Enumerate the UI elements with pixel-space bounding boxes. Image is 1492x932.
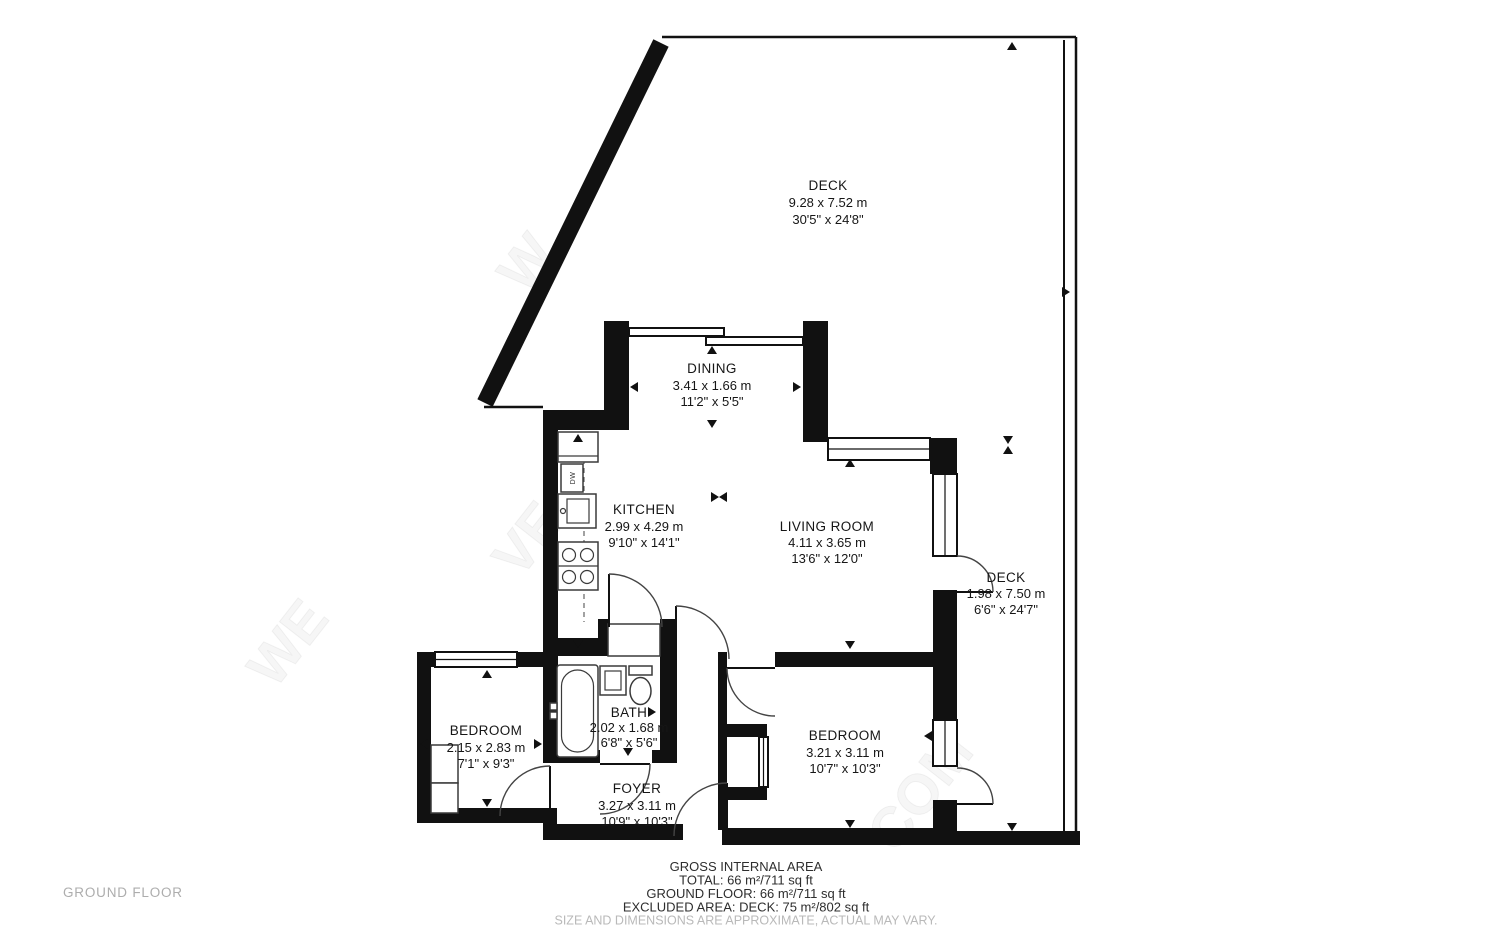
bath-sink (600, 666, 626, 695)
floor-label: GROUND FLOOR (63, 885, 183, 900)
room-dim-metric: 9.28 x 7.52 m (789, 195, 868, 210)
bedroom-right-door (727, 668, 775, 716)
kitchen-closet-door (609, 574, 662, 627)
room-name: DECK (808, 178, 847, 193)
room-dim-metric: 1.98 x 7.50 m (967, 586, 1046, 601)
room-name: DECK (986, 570, 1025, 585)
room-dim-metric: 2.15 x 2.83 m (447, 740, 526, 755)
toilet-tank (629, 666, 652, 675)
room-label-dining: DINING 3.41 x 1.66 m 11'2" x 5'5" (673, 361, 752, 409)
living-room-door (676, 606, 729, 659)
toilet-bowl (630, 678, 651, 705)
kitchen-fixtures: DW (558, 432, 598, 622)
dishwasher-label: DW (570, 472, 577, 485)
room-dim-imperial: 10'9" x 10'3" (601, 814, 673, 829)
room-label-living-room: LIVING ROOM 4.11 x 3.65 m 13'6" x 12'0" (780, 519, 874, 566)
room-label-bedroom-left: BEDROOM 2.15 x 2.83 m 7'1" x 9'3" (447, 723, 526, 771)
room-dim-metric: 2.99 x 4.29 m (605, 519, 684, 534)
room-name: LIVING ROOM (780, 519, 874, 534)
room-dim-metric: 4.11 x 3.65 m (788, 535, 866, 550)
sliding-panel (706, 337, 803, 345)
bedroom-left-furniture (431, 745, 458, 813)
room-name: BEDROOM (809, 728, 882, 743)
room-dim-imperial: 9'10" x 14'1" (608, 535, 680, 550)
watermark-fragment: WE (235, 588, 340, 698)
room-dim-imperial: 6'6" x 24'7" (974, 602, 1038, 617)
sliding-door-dining (629, 328, 803, 345)
room-dim-imperial: 13'6" x 12'0" (791, 551, 863, 566)
room-name: BEDROOM (450, 723, 523, 738)
room-label-foyer: FOYER 3.27 x 3.11 m 10'9" x 10'3" (598, 781, 676, 829)
room-label-bath: BATH 2.02 x 1.68 m 6'8" x 5'6" (590, 705, 669, 750)
room-name: BATH (611, 705, 648, 720)
room-name: FOYER (613, 781, 662, 796)
windows (435, 438, 957, 766)
room-dim-imperial: 30'5" x 24'8" (792, 212, 864, 227)
room-dim-metric: 2.02 x 1.68 m (590, 720, 669, 735)
diagonal-deck-wall (485, 43, 661, 403)
room-dim-metric: 3.27 x 3.11 m (598, 798, 676, 813)
room-label-deck-side: DECK 1.98 x 7.50 m 6'6" x 24'7" (967, 570, 1046, 617)
room-dim-metric: 3.41 x 1.66 m (673, 378, 752, 393)
dimension-ticks (420, 42, 1070, 831)
room-label-kitchen: KITCHEN 2.99 x 4.29 m 9'10" x 14'1" (605, 502, 684, 550)
sliding-panel (629, 328, 724, 336)
kitchen-closet (608, 624, 660, 656)
area-summary: GROSS INTERNAL AREA TOTAL: 66 m²/711 sq … (555, 859, 938, 928)
summary-excluded: EXCLUDED AREA: DECK: 75 m²/802 sq ft (623, 900, 870, 915)
room-label-bedroom-right: BEDROOM 3.21 x 3.11 m 10'7" x 10'3" (806, 728, 884, 776)
bath-faucet (550, 712, 557, 719)
room-dim-imperial: 11'2" x 5'5" (680, 394, 743, 409)
room-dim-metric: 3.21 x 3.11 m (806, 745, 884, 760)
walls (417, 321, 1080, 845)
room-name: KITCHEN (613, 502, 675, 517)
wardrobe (431, 783, 458, 813)
room-dim-imperial: 10'7" x 10'3" (809, 761, 881, 776)
bath-faucet (550, 703, 557, 710)
summary-disclaimer: SIZE AND DIMENSIONS ARE APPROXIMATE, ACT… (555, 914, 938, 928)
floorplan-drawing: WE VE COM W (0, 0, 1492, 932)
room-name: DINING (687, 361, 737, 376)
room-dim-imperial: 7'1" x 9'3" (458, 756, 515, 771)
room-dim-imperial: 6'8" x 5'6" (601, 735, 658, 750)
room-label-deck-main: DECK 9.28 x 7.52 m 30'5" x 24'8" (789, 178, 868, 227)
floorplan-page: WE VE COM W (0, 0, 1492, 932)
